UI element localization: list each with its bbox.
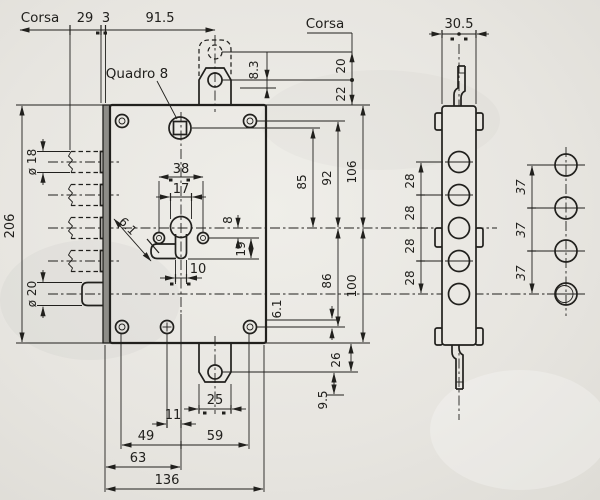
dim-20: 20	[334, 58, 348, 73]
dim-17: 17	[173, 182, 190, 197]
dim-28-2: 28	[403, 205, 417, 220]
dim-91-5: 91.5	[146, 11, 175, 26]
dim-8-3: 8.3	[247, 60, 261, 79]
dim-100: 100	[345, 275, 359, 298]
dim-25: 25	[207, 393, 224, 408]
dim-86: 86	[320, 273, 334, 288]
dim-28-3: 28	[403, 238, 417, 253]
dim-10: 10	[190, 262, 207, 277]
dim-9-5: 9.5	[316, 390, 330, 409]
label-corsa-right: Corsa	[306, 16, 345, 32]
dim-22: 22	[334, 86, 348, 101]
dim-3: 3	[102, 11, 110, 26]
label-quadro-8: Quadro 8	[106, 66, 168, 82]
dim-28-1: 28	[403, 173, 417, 188]
dim-8: 8	[221, 216, 235, 224]
dim-106: 106	[345, 161, 359, 184]
dim-59: 59	[207, 429, 224, 444]
dim-19: 19	[234, 241, 248, 256]
dim-6-1-right: 6.1	[270, 299, 284, 318]
dim-38: 38	[173, 162, 190, 177]
label-corsa-left: Corsa	[21, 10, 60, 26]
dim-30-5: 30.5	[445, 17, 474, 32]
dim-26: 26	[329, 352, 343, 367]
technical-drawing: Corsa 29 3 91.5 Corsa 20 22 8.3 Quadro 8…	[0, 0, 600, 500]
dim-63: 63	[130, 451, 147, 466]
dim-dia-18: ø 18	[25, 149, 39, 175]
dim-85: 85	[295, 174, 309, 189]
dim-37-1: 37	[514, 179, 528, 195]
dim-dia-20: ø 20	[25, 281, 39, 307]
dim-28-4: 28	[403, 270, 417, 285]
dim-37-3: 37	[514, 265, 528, 281]
dim-136: 136	[155, 473, 180, 488]
dim-37-2: 37	[514, 222, 528, 238]
dim-206: 206	[3, 214, 18, 239]
dim-49: 49	[138, 429, 155, 444]
dim-92: 92	[320, 170, 334, 185]
dim-11: 11	[165, 408, 182, 423]
side-case	[442, 106, 476, 345]
dim-29: 29	[77, 11, 94, 26]
